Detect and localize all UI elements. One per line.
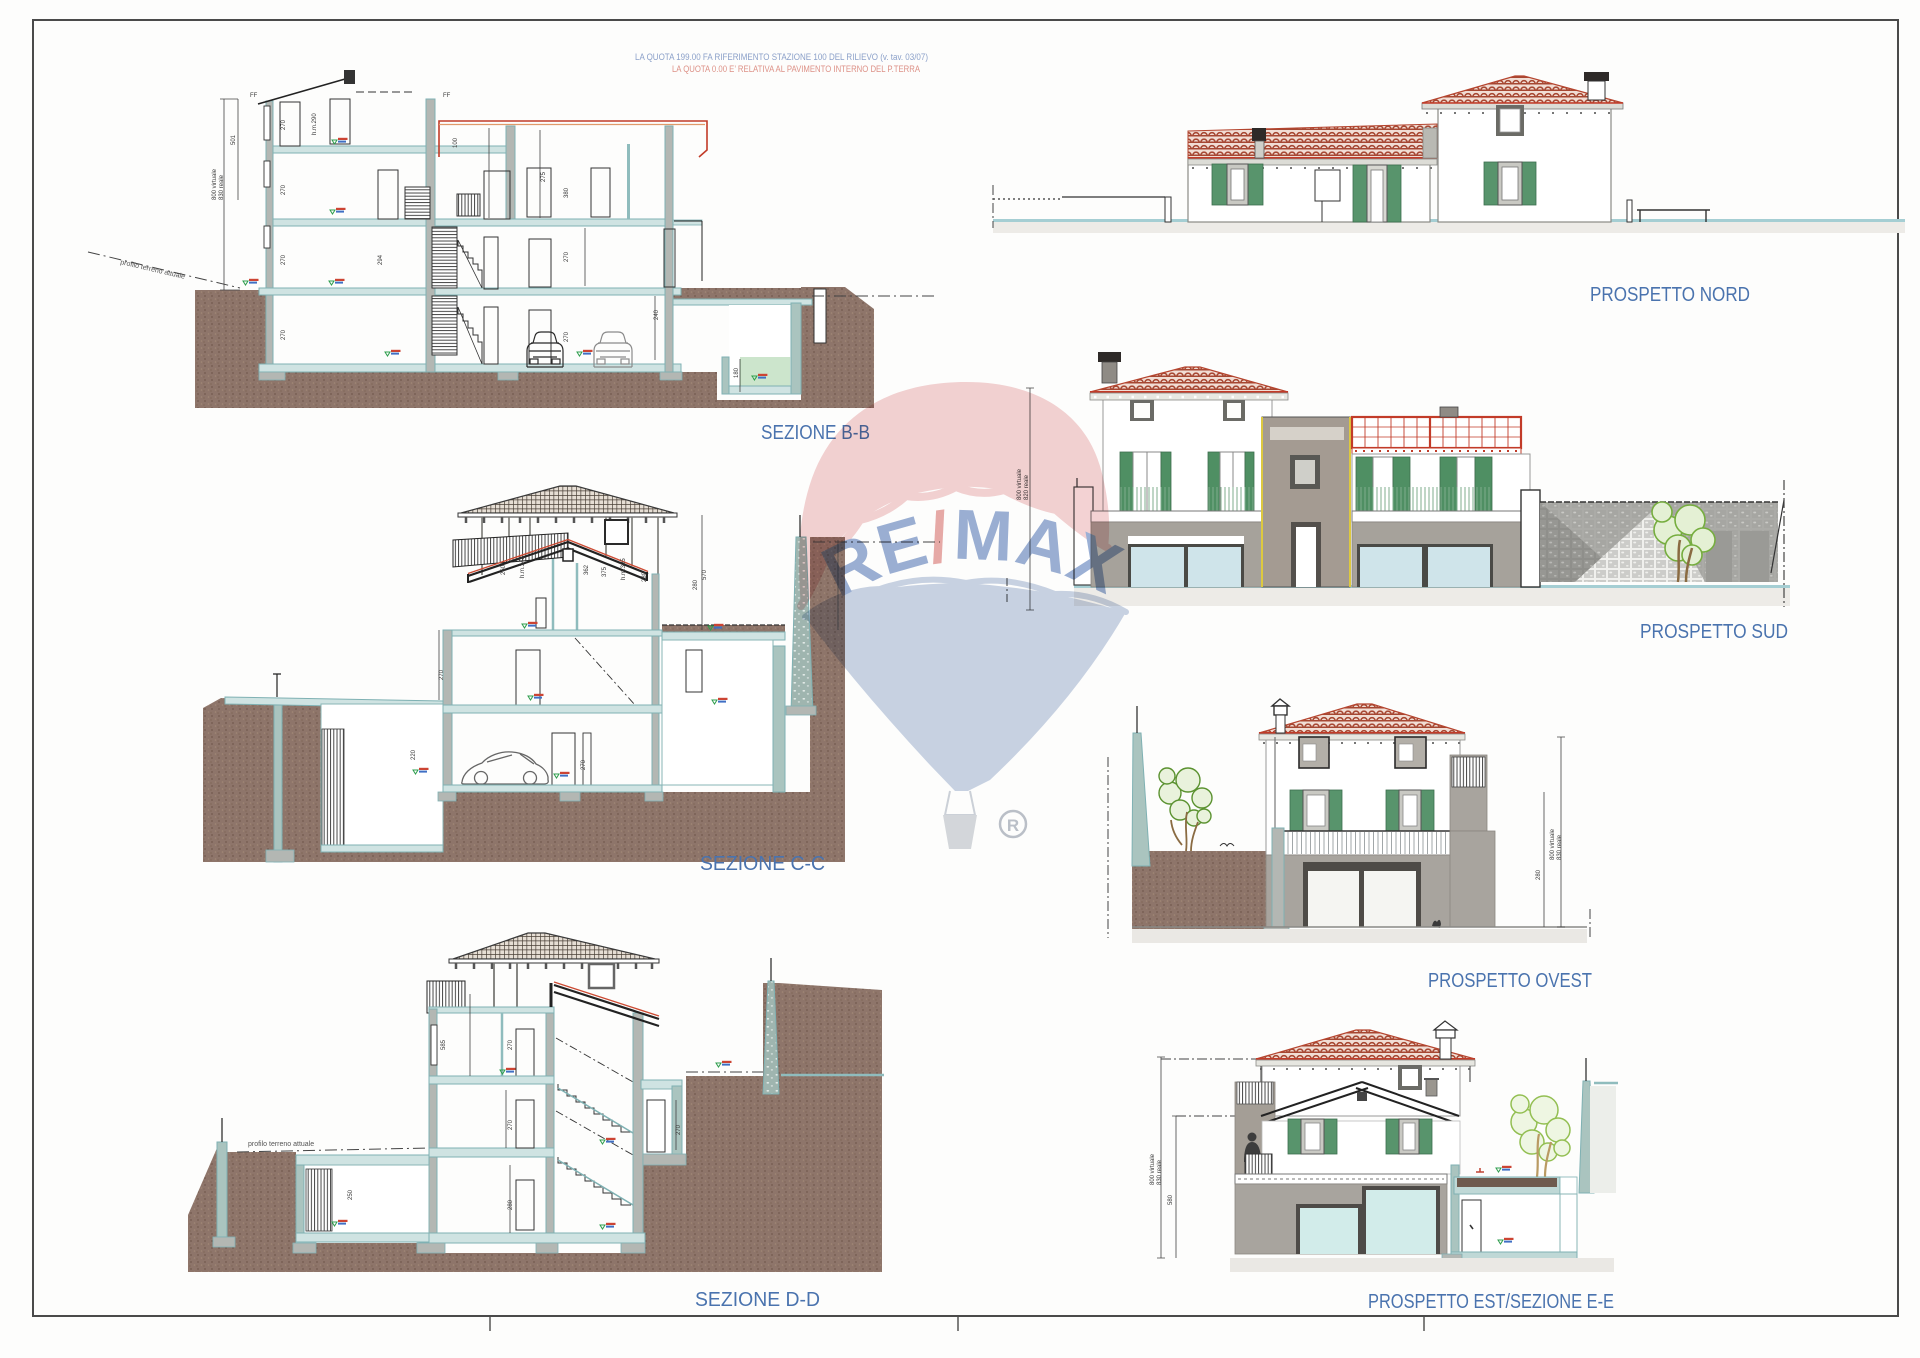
svg-text:h.m.305: h.m.305	[621, 558, 627, 580]
svg-text:270: 270	[564, 251, 570, 262]
svg-text:260: 260	[501, 564, 507, 575]
svg-text:h.m.343: h.m.343	[520, 556, 526, 578]
svg-text:294: 294	[378, 254, 384, 265]
svg-text:FF: FF	[250, 93, 258, 99]
svg-text:180: 180	[734, 367, 740, 378]
svg-text:PROSPETTO SUD: PROSPETTO SUD	[1640, 621, 1788, 643]
svg-text:FF: FF	[443, 93, 451, 99]
svg-text:270: 270	[281, 329, 287, 340]
svg-text:profilo terreno attuale: profilo terreno attuale	[120, 259, 186, 281]
svg-text:501: 501	[231, 134, 237, 145]
svg-text:SEZIONE D-D: SEZIONE D-D	[695, 1289, 820, 1311]
svg-text:270: 270	[439, 669, 445, 680]
svg-text:585: 585	[441, 1039, 447, 1050]
svg-text:375: 375	[602, 566, 608, 577]
svg-text:LA QUOTA 199.00 FA RIFERIMEN: LA QUOTA 199.00 FA RIFERIMENTO STAZIONE …	[635, 52, 928, 63]
svg-text:800 virtuale: 800 virtuale	[1550, 828, 1556, 860]
svg-text:830 reale: 830 reale	[219, 174, 225, 200]
svg-text:SEZIONE C-C: SEZIONE C-C	[700, 853, 825, 875]
svg-text:LA QUOTA 0.00 E’ RELATIVA AL: LA QUOTA 0.00 E’ RELATIVA AL PAVIMENTO I…	[672, 64, 921, 75]
svg-text:R: R	[1007, 816, 1019, 835]
svg-text:270: 270	[281, 119, 287, 130]
svg-text:580: 580	[1168, 1194, 1174, 1205]
svg-text:220: 220	[411, 749, 417, 760]
svg-text:275: 275	[541, 171, 547, 182]
svg-text:270: 270	[281, 184, 287, 195]
svg-text:570: 570	[702, 569, 708, 580]
svg-text:270: 270	[281, 254, 287, 265]
svg-text:830 reale: 830 reale	[1157, 1159, 1163, 1185]
svg-text:280: 280	[642, 571, 648, 582]
svg-text:270: 270	[508, 1119, 514, 1130]
svg-text:270: 270	[581, 759, 587, 770]
svg-text:280: 280	[693, 579, 699, 590]
svg-text:280: 280	[508, 1199, 514, 1210]
svg-text:270: 270	[508, 1039, 514, 1050]
svg-text:h.m.290: h.m.290	[312, 113, 318, 135]
svg-text:100: 100	[453, 137, 459, 148]
svg-text:PROSPETTO OVEST: PROSPETTO OVEST	[1428, 970, 1592, 992]
svg-text:280: 280	[1536, 869, 1542, 880]
svg-text:800 virtuale: 800 virtuale	[1150, 1153, 1156, 1185]
svg-text:270: 270	[564, 331, 570, 342]
svg-text:profilo terreno attuale: profilo terreno attuale	[248, 1141, 314, 1148]
svg-text:362: 362	[584, 564, 590, 575]
svg-text:830 reale: 830 reale	[1557, 834, 1563, 860]
svg-text:250: 250	[348, 1189, 354, 1200]
svg-text:270: 270	[676, 1124, 682, 1135]
svg-text:PROSPETTO EST/SEZIONE E-E: PROSPETTO EST/SEZIONE E-E	[1368, 1291, 1614, 1313]
svg-text:800 virtuale: 800 virtuale	[212, 168, 218, 200]
svg-text:380: 380	[564, 187, 570, 198]
svg-text:PROSPETTO NORD: PROSPETTO NORD	[1590, 284, 1750, 306]
